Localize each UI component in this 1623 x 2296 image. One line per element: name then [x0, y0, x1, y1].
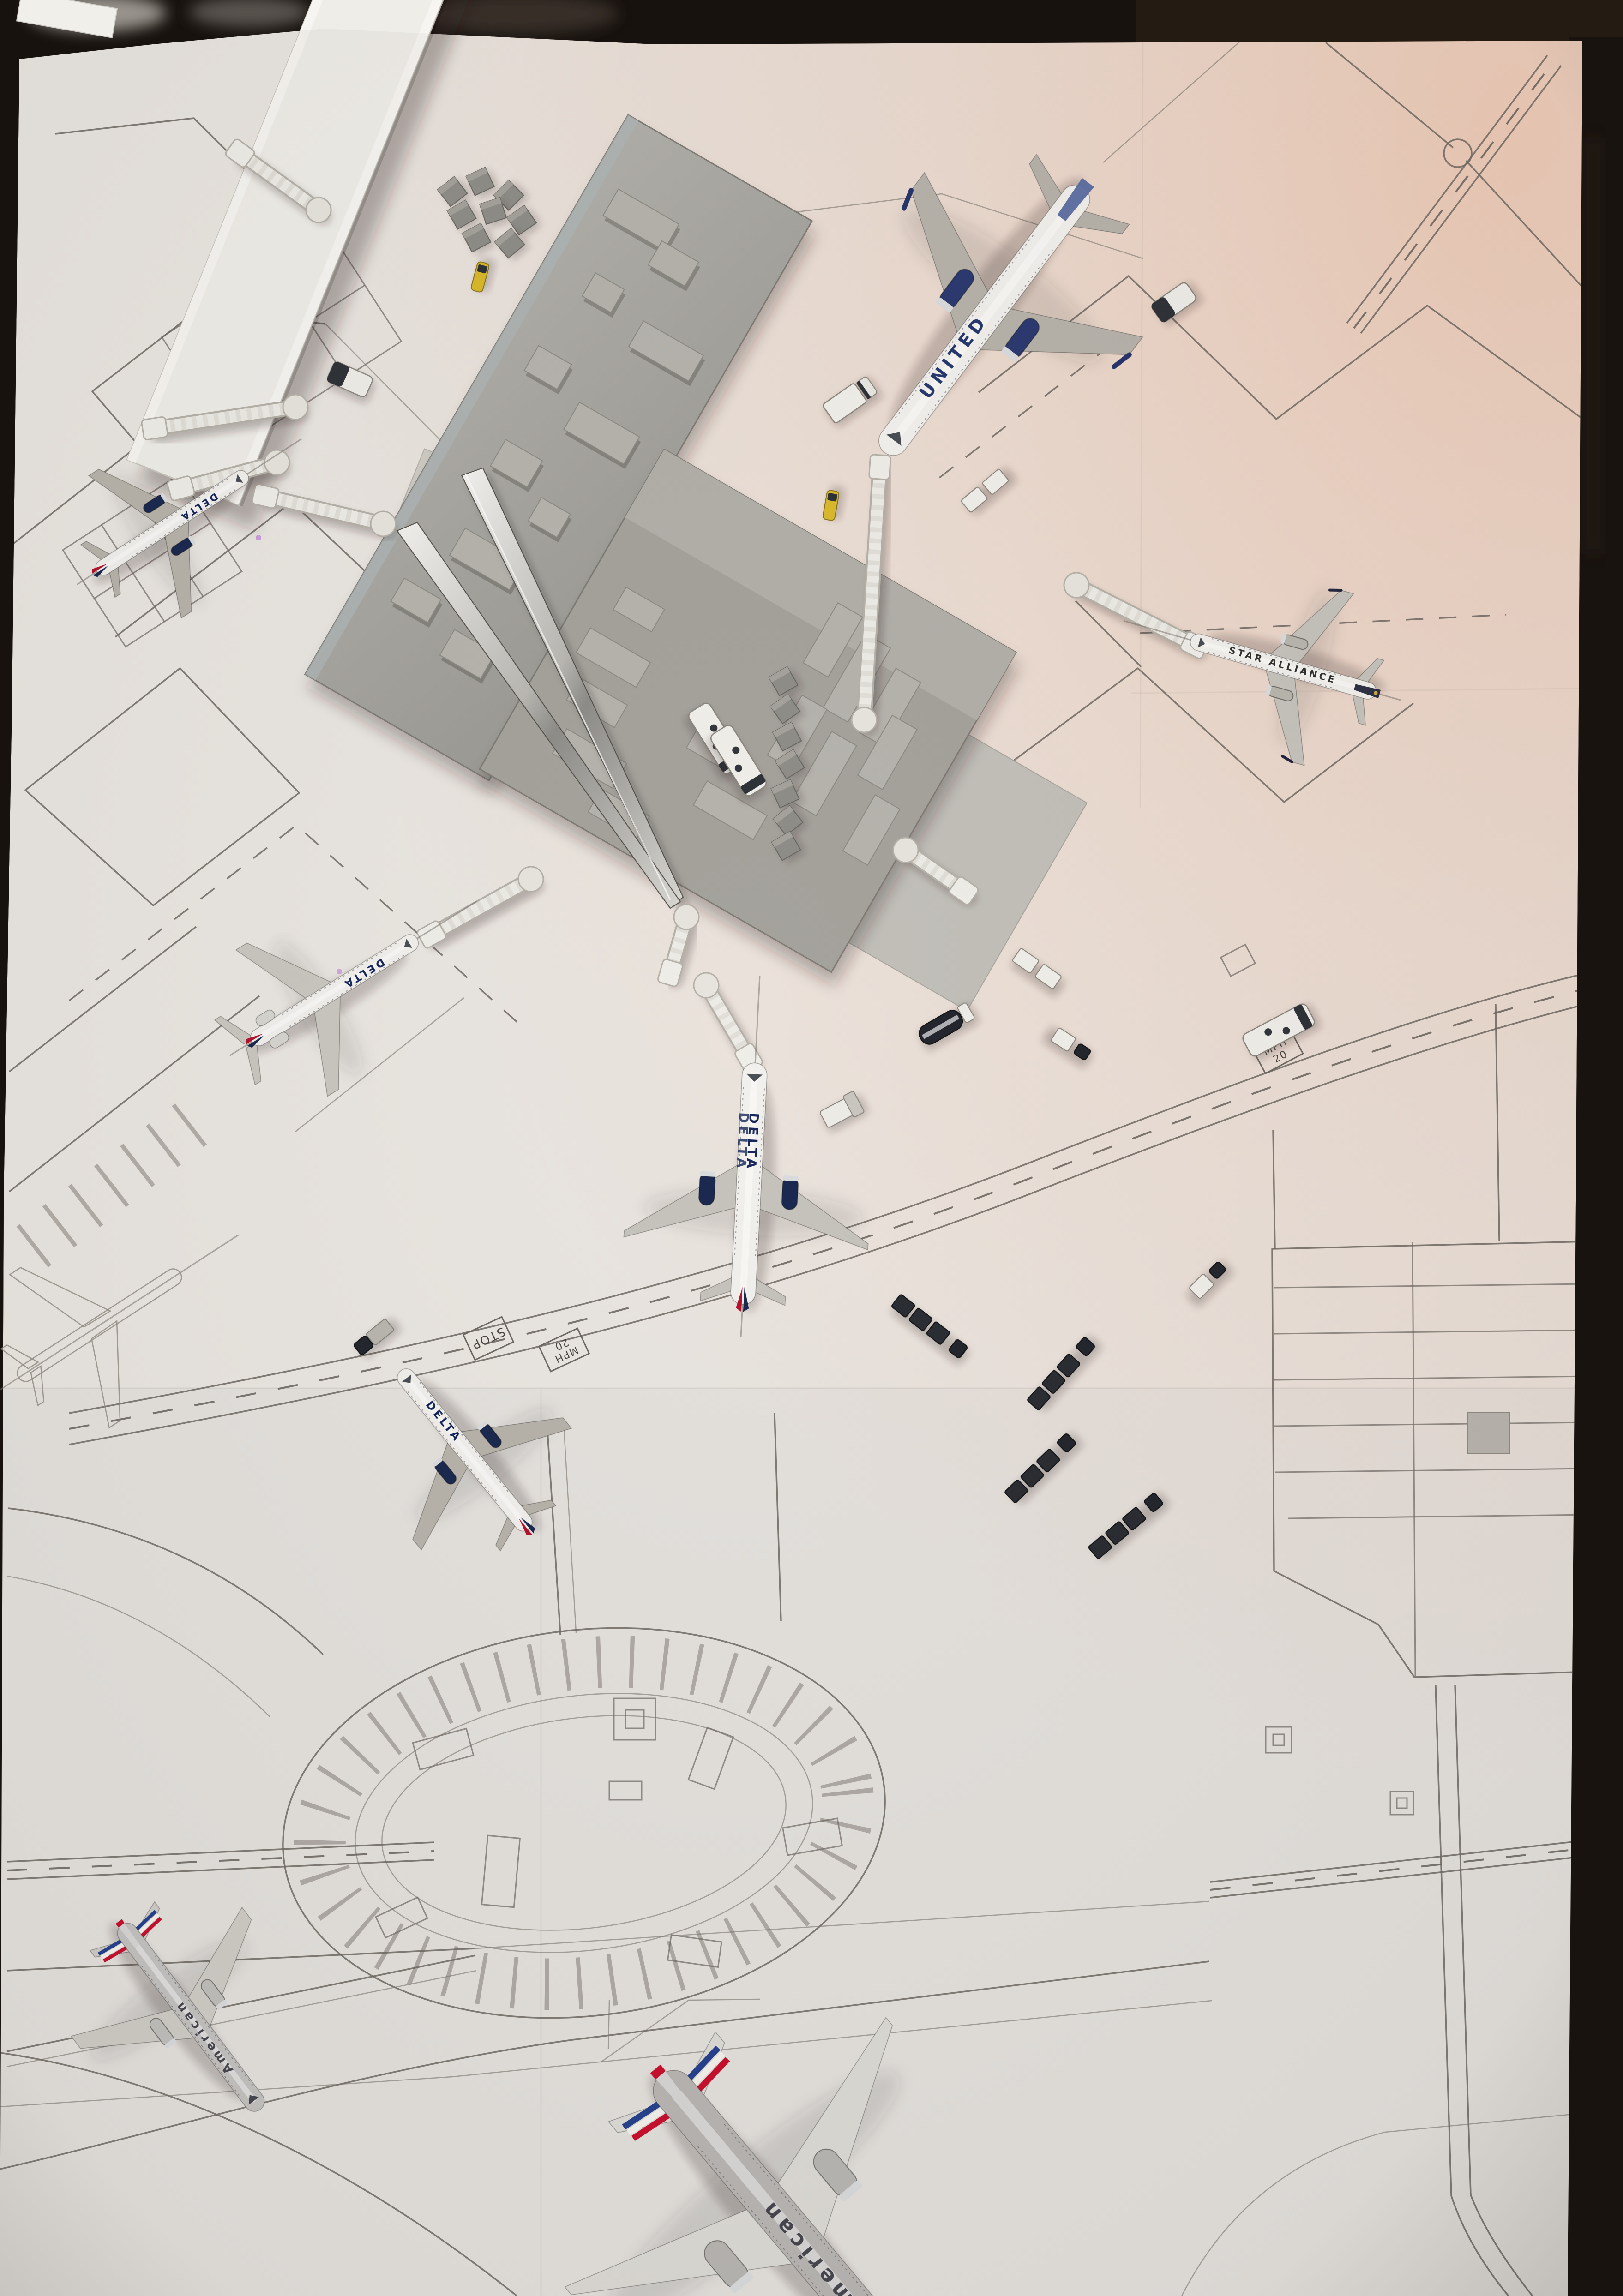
vignette [0, 0, 1623, 2296]
sensor-speck [337, 969, 342, 974]
sensor-speck [256, 535, 261, 540]
table-edge-dark [1136, 0, 1623, 42]
photo-effects [0, 0, 1623, 2296]
table-streak [1588, 138, 1599, 554]
model-airport-photo: STOPMPH20MPH20D12D14S05B [0, 0, 1623, 2296]
